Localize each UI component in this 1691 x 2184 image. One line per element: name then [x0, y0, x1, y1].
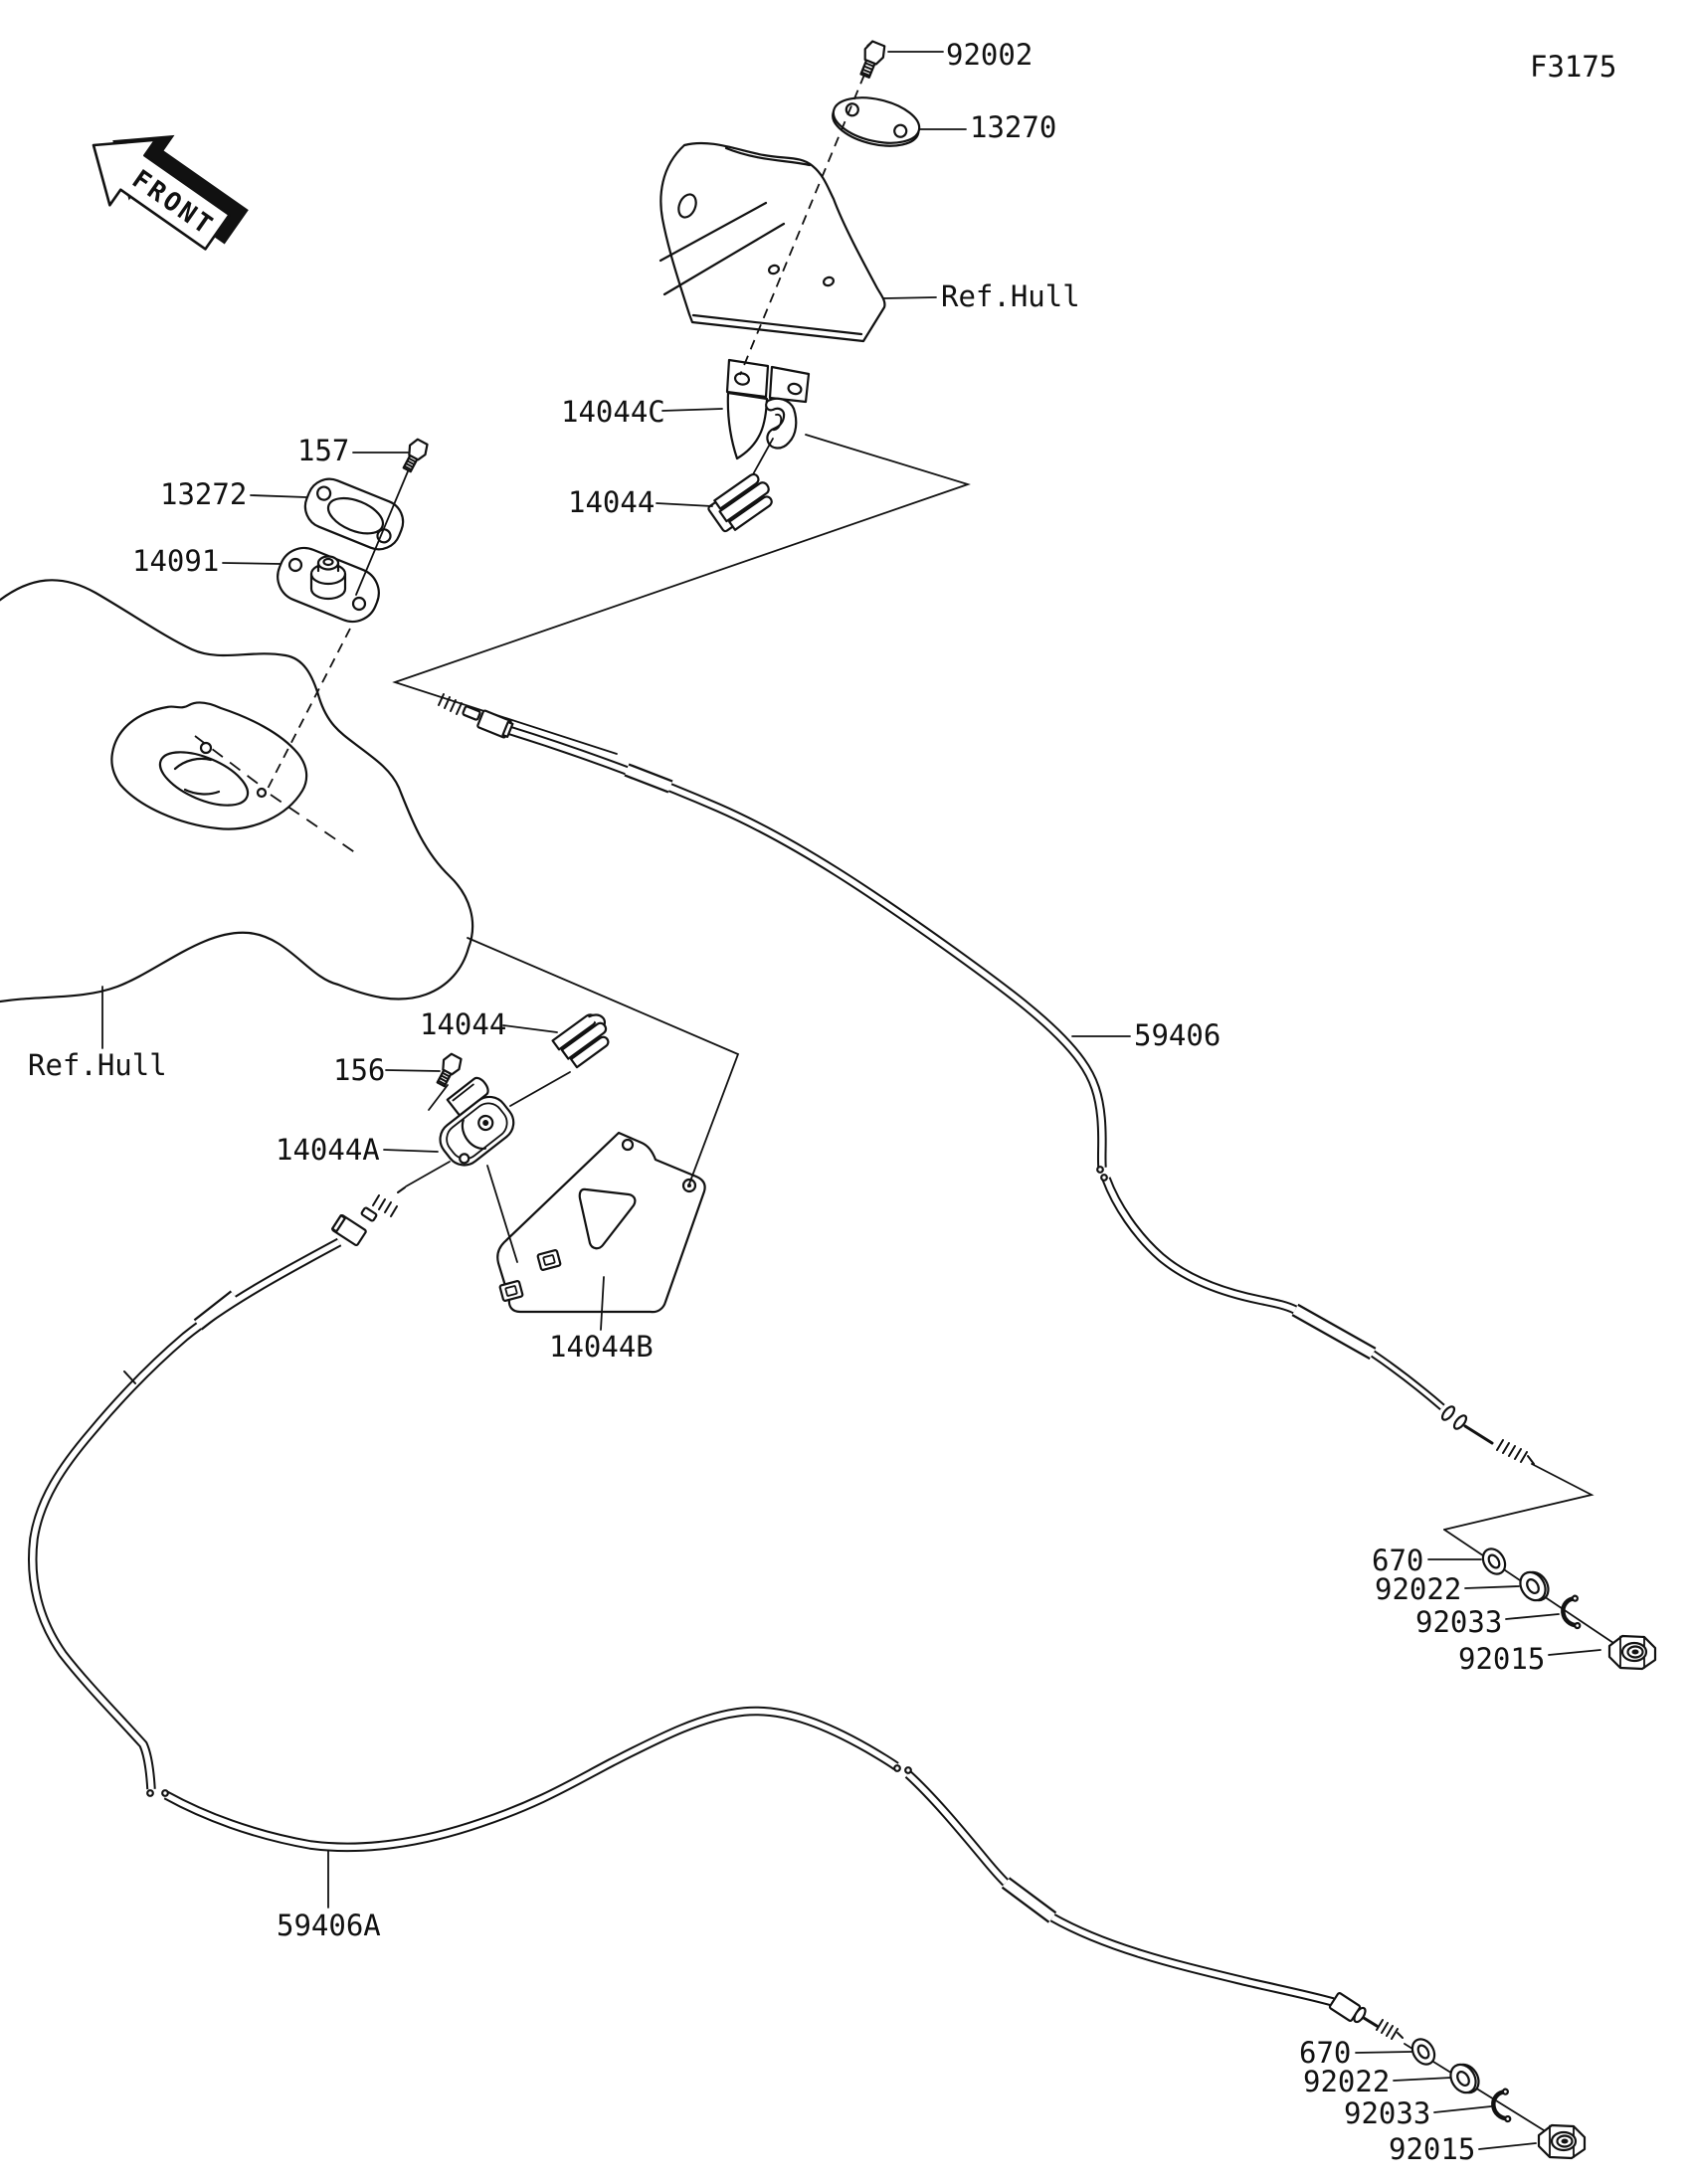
figure-code-label: F3175: [1530, 50, 1616, 84]
diagram-canvas: FRONT F3175 92002 13270 Ref.Hull 14044C …: [0, 0, 1691, 2184]
bracket-14044B-drawing: [497, 1133, 704, 1312]
part-label-156: 156: [333, 1053, 385, 1087]
cable-59406A-drawing: [33, 1242, 1333, 2002]
part-label-13270: 13270: [970, 110, 1056, 144]
part-label-92015-upper: 92015: [1458, 1642, 1545, 1676]
part-label-92022-lower: 92022: [1303, 2065, 1390, 2098]
washer-92022-lower: [1445, 2059, 1483, 2098]
nut-92015-upper: [1609, 1636, 1655, 1669]
part-label-14044-mid: 14044: [420, 1007, 506, 1041]
part-label-14044-upper: 14044: [568, 485, 655, 519]
o-ring-670-lower: [1408, 2035, 1438, 2068]
part-label-14091: 14091: [132, 544, 219, 578]
cable-mount-14091-drawing: [271, 540, 387, 629]
part-label-92022-upper: 92022: [1375, 1572, 1461, 1606]
bolt-92002-drawing: [855, 40, 887, 80]
part-label-14044B: 14044B: [549, 1330, 654, 1364]
clip-14044-mid-drawing: [553, 1008, 618, 1069]
gasket-13272-drawing: [298, 472, 409, 556]
leader-lines: [102, 52, 1600, 2149]
part-label-13272: 13272: [160, 477, 247, 511]
cover-plate-13270-drawing: [829, 91, 924, 154]
hull-panel-left-drawing: [0, 580, 472, 1002]
hull-panel-top-drawing: [660, 143, 884, 341]
o-ring-670-upper: [1478, 1545, 1509, 1577]
part-label-92015-lower: 92015: [1389, 2132, 1475, 2166]
part-label-92033-lower: 92033: [1344, 2096, 1430, 2130]
ref-hull-top-label: Ref.Hull: [941, 279, 1080, 313]
parts-diagram-page: FRONT F3175 92002 13270 Ref.Hull 14044C …: [0, 0, 1691, 2184]
screw-157-drawing: [399, 438, 430, 474]
part-label-92002: 92002: [946, 38, 1033, 72]
part-label-92033-upper: 92033: [1415, 1605, 1502, 1639]
front-arrow: FRONT: [71, 100, 260, 272]
part-label-157: 157: [297, 434, 349, 467]
washer-92022-upper: [1515, 1566, 1553, 1606]
part-labels: F3175 92002 13270 Ref.Hull 14044C 14044 …: [28, 38, 1616, 2166]
cable-holder-14044A-drawing: [421, 1074, 521, 1173]
bracket-14044C-drawing: [727, 360, 809, 458]
part-label-14044C: 14044C: [561, 395, 665, 429]
part-label-14044A: 14044A: [276, 1133, 380, 1167]
nut-92015-lower: [1539, 2125, 1585, 2158]
clamp-14044-upper-drawing: [706, 470, 778, 535]
part-label-59406: 59406: [1134, 1018, 1221, 1052]
ref-hull-left-label: Ref.Hull: [28, 1048, 167, 1082]
part-label-59406A: 59406A: [277, 1909, 381, 1942]
